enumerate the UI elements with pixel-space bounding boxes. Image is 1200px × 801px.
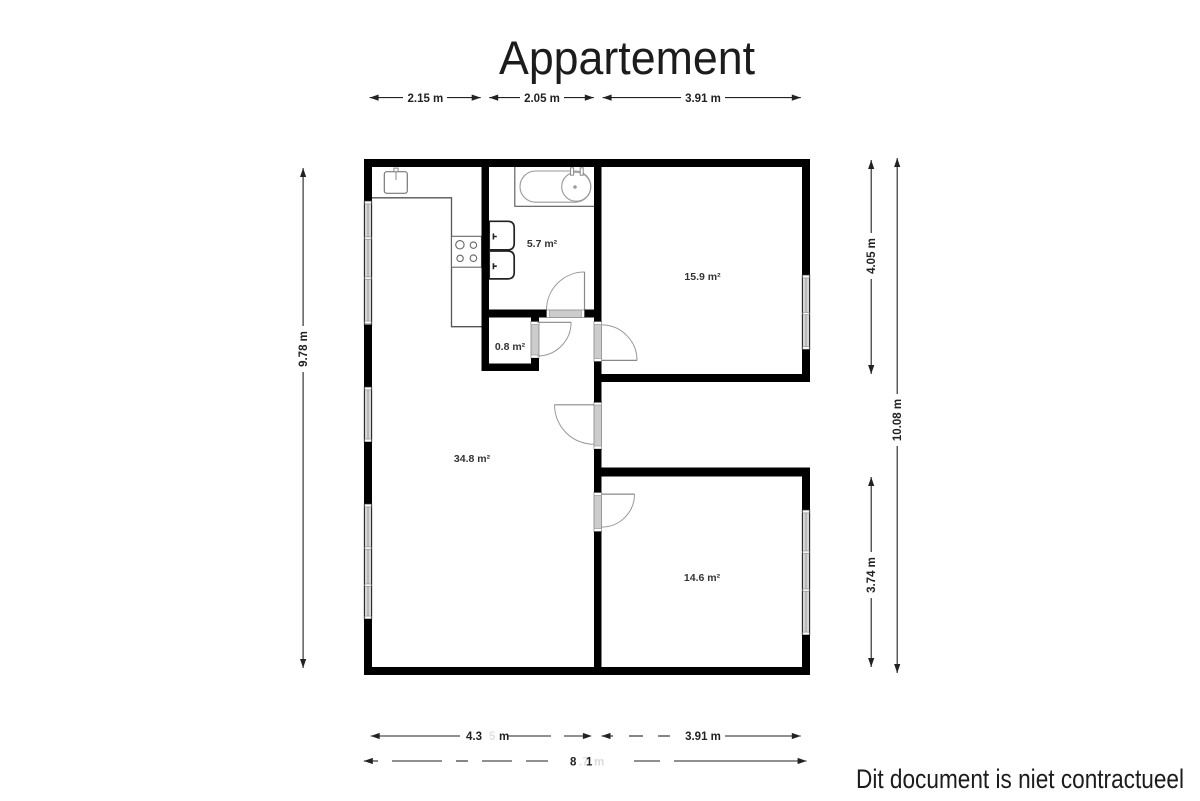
- svg-text:15.9 m²: 15.9 m²: [684, 271, 721, 283]
- svg-text:9.78 m: 9.78 m: [298, 331, 310, 367]
- svg-text:m: m: [499, 731, 509, 743]
- svg-text:0.8 m²: 0.8 m²: [495, 341, 526, 353]
- svg-text:8: 8: [570, 757, 577, 769]
- svg-text:m: m: [594, 757, 604, 769]
- svg-text:2.15 m: 2.15 m: [407, 93, 443, 105]
- svg-text:10.08 m: 10.08 m: [892, 399, 904, 441]
- svg-text:3.74 m: 3.74 m: [866, 557, 878, 593]
- svg-text:4.05 m: 4.05 m: [866, 238, 878, 274]
- svg-text:3.91 m: 3.91 m: [685, 731, 721, 743]
- svg-text:34.8 m²: 34.8 m²: [454, 453, 491, 465]
- svg-text:4.3: 4.3: [466, 731, 482, 743]
- svg-text:Dit document is niet contractu: Dit document is niet contractueel: [856, 764, 1184, 794]
- svg-text:1: 1: [586, 757, 593, 769]
- svg-text:14.6 m²: 14.6 m²: [684, 572, 721, 584]
- svg-text:5: 5: [489, 731, 496, 743]
- svg-text:Appartement: Appartement: [499, 31, 755, 84]
- svg-text:2.05 m: 2.05 m: [524, 93, 560, 105]
- svg-text:5.7 m²: 5.7 m²: [527, 238, 558, 250]
- svg-text:3.91 m: 3.91 m: [685, 93, 721, 105]
